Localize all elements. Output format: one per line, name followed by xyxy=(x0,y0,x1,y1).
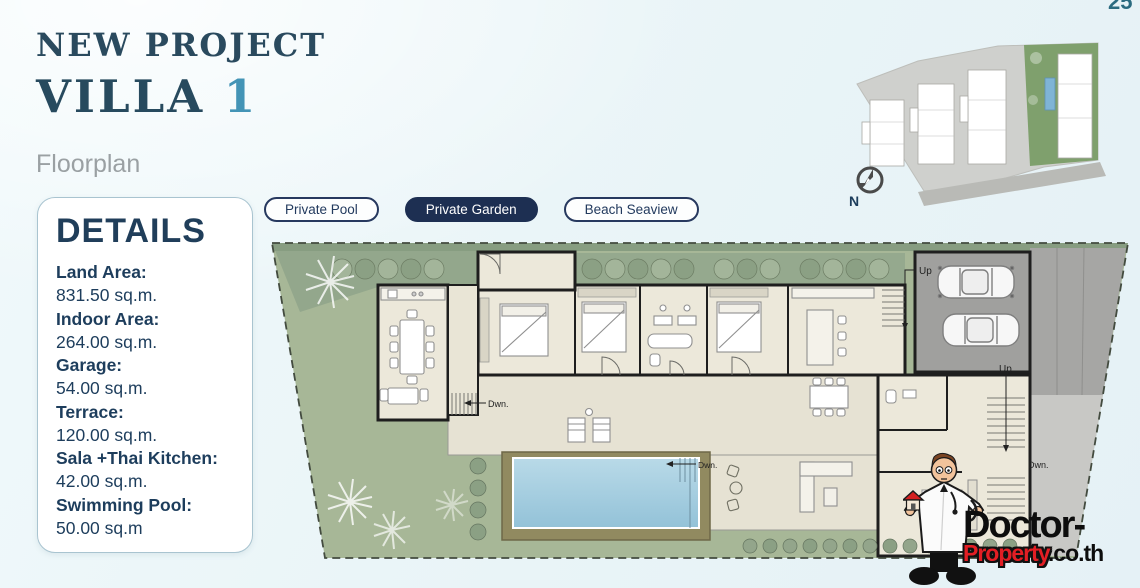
dwn-label-pool: Dwn. xyxy=(698,460,717,470)
detail-label: Terrace: xyxy=(56,402,124,422)
site-map: N xyxy=(848,38,1128,216)
dwn-label-right: Dwn. xyxy=(1028,460,1049,470)
up-label-garage: Up xyxy=(919,266,932,277)
hedge-bushes xyxy=(332,259,889,279)
car xyxy=(938,266,1014,298)
tag-beach-seaview[interactable]: Beach Seaview xyxy=(564,197,699,222)
detail-row: Land Area:831.50 sq.m. xyxy=(56,261,234,308)
detail-label: Land Area: xyxy=(56,262,147,282)
tag-private-pool[interactable]: Private Pool xyxy=(264,197,379,222)
feature-tags: Private Pool Private Garden Beach Seavie… xyxy=(264,197,699,222)
logo-property-text: Property.co.th xyxy=(963,542,1140,565)
page-number: 25 xyxy=(1108,0,1132,15)
detail-value: 120.00 sq.m. xyxy=(56,425,157,445)
detail-row: Garage:54.00 sq.m. xyxy=(56,354,234,401)
section-label: Floorplan xyxy=(36,150,140,179)
title-accent: 1 xyxy=(224,70,258,123)
dwn-label-hall: Dwn. xyxy=(488,399,509,409)
title-text: VILLA xyxy=(36,70,205,123)
compass-north-label: N xyxy=(849,193,859,209)
car xyxy=(943,314,1019,346)
detail-value: 42.00 sq.m. xyxy=(56,471,147,491)
up-label-right: Up xyxy=(999,364,1012,375)
house-icon xyxy=(903,491,923,510)
detail-row: Sala +Thai Kitchen:42.00 sq.m. xyxy=(56,447,234,494)
hedge-strip xyxy=(272,243,1128,251)
detail-row: Indoor Area:264.00 sq.m. xyxy=(56,308,234,355)
page-title: VILLA 1 xyxy=(36,70,258,123)
detail-value: 50.00 sq.m xyxy=(56,518,143,538)
detail-label: Swimming Pool: xyxy=(56,495,192,515)
detail-value: 831.50 sq.m. xyxy=(56,285,157,305)
brochure-page: 25 NEW PROJECT VILLA 1 Floorplan DETAILS… xyxy=(0,0,1140,588)
detail-value: 54.00 sq.m. xyxy=(56,378,147,398)
details-title: DETAILS xyxy=(56,212,234,251)
logo-doctor-text: Doctor- xyxy=(963,506,1140,544)
brand-logo[interactable]: Doctor- Property.co.th xyxy=(963,506,1140,565)
compass-icon xyxy=(858,168,882,192)
garage xyxy=(915,252,1030,372)
detail-row: Swimming Pool:50.00 sq.m xyxy=(56,494,234,541)
logo-property-red: Property xyxy=(963,540,1048,566)
swimming-pool xyxy=(502,452,710,540)
details-card: DETAILS Land Area:831.50 sq.m. Indoor Ar… xyxy=(37,197,253,553)
detail-label: Garage: xyxy=(56,355,122,375)
detail-label: Sala +Thai Kitchen: xyxy=(56,448,218,468)
detail-value: 264.00 sq.m. xyxy=(56,332,157,352)
site-map-pool xyxy=(1045,78,1055,110)
project-eyebrow: NEW PROJECT xyxy=(36,26,326,64)
logo-domain-text: .co.th xyxy=(1048,540,1103,566)
detail-label: Indoor Area: xyxy=(56,309,159,329)
detail-row: Terrace:120.00 sq.m. xyxy=(56,401,234,448)
tag-private-garden[interactable]: Private Garden xyxy=(405,197,538,222)
